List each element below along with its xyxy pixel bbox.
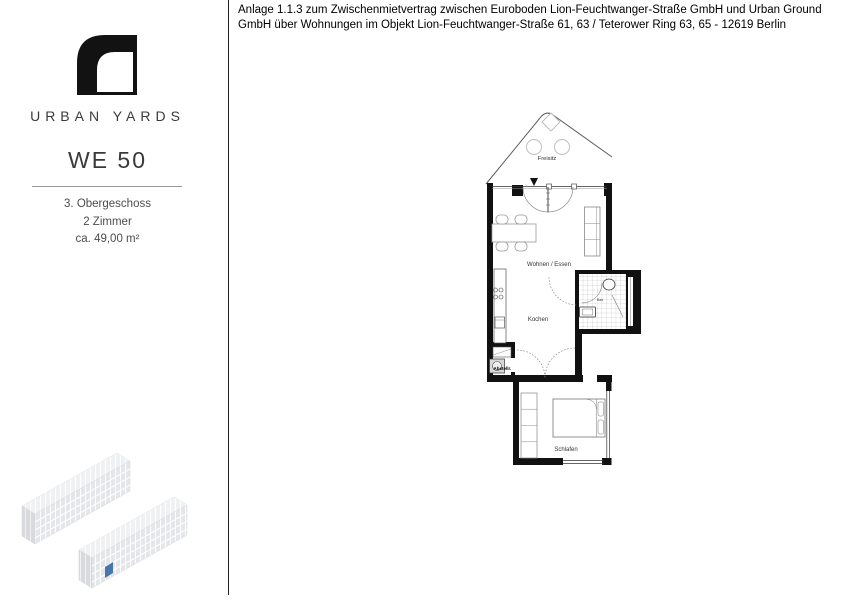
kitchen: Kochen — [494, 269, 549, 343]
urban-yards-logo-icon — [77, 35, 137, 95]
bathroom: Bad — [575, 270, 641, 334]
room-label-bad: Bad — [597, 298, 603, 302]
room-label-schlafen: Schlafen — [554, 447, 577, 453]
bedroom: Schlafen — [521, 391, 610, 464]
pillow — [598, 420, 604, 434]
terrace-chair — [555, 140, 570, 155]
wall-right-upper — [606, 183, 612, 273]
logo-svg — [77, 35, 137, 95]
room-label-freisitz: Freisitz — [538, 156, 557, 162]
toilet-icon — [580, 307, 596, 317]
entrance-arrow-icon — [530, 178, 538, 186]
terrace-chair — [527, 140, 542, 155]
storage-room: Abstellr. — [490, 347, 512, 373]
wall-bedroom-bottom-corner — [602, 458, 612, 465]
room-label-kochen: Kochen — [528, 317, 548, 323]
header-attachment-note: Anlage 1.1.3 zum Zwischenmietvertrag zwi… — [238, 3, 854, 33]
kitchen-sink-icon — [495, 317, 505, 328]
detail-floor: 3. Obergeschoss — [0, 196, 215, 214]
wall-bedroom-left — [513, 382, 519, 462]
room-label-abstellraum: Abstellr. — [494, 366, 512, 371]
site-plan — [10, 445, 210, 595]
logo-inner-shape — [97, 52, 133, 92]
wardrobe — [521, 393, 537, 458]
unit-details: 3. Obergeschoss 2 Zimmer ca. 49,00 m² — [0, 196, 215, 249]
detail-area: ca. 49,00 m² — [0, 231, 215, 249]
living-dining-room: Wohnen / Essen — [492, 207, 600, 268]
entrance — [523, 178, 573, 212]
wall-tick — [606, 382, 612, 391]
window-front-top — [492, 184, 607, 189]
sidebar-rule — [32, 186, 182, 187]
terrace-table — [542, 113, 560, 131]
bathroom-sink-icon — [603, 279, 615, 290]
terrace: Freisitz — [486, 113, 612, 184]
door-swing — [549, 277, 577, 305]
sidebar-divider — [228, 0, 229, 595]
room-label-wohnen-essen: Wohnen / Essen — [527, 262, 571, 268]
wall-left — [487, 183, 493, 382]
sofa — [585, 207, 601, 256]
pillow — [598, 402, 604, 416]
brand-name: URBAN YARDS — [0, 108, 215, 124]
dining-table — [492, 224, 536, 242]
wall-bedroom-bottom — [513, 458, 563, 465]
dining-chair — [515, 215, 527, 224]
unit-title: WE 50 — [0, 147, 215, 174]
wall-below-bath — [575, 334, 582, 382]
wall-bedroom-top-right — [597, 375, 612, 382]
detail-rooms: 2 Zimmer — [0, 214, 215, 232]
window-mullion — [547, 184, 552, 189]
wall-bedroom-top — [511, 375, 583, 382]
door-swing — [545, 348, 575, 378]
window-mullion — [572, 184, 577, 189]
door-swing — [517, 350, 545, 378]
floor-plan-svg: Freisitz — [455, 100, 665, 495]
page: { "header": { "attachment_note": "Anlage… — [0, 0, 856, 595]
kitchen-counter — [494, 269, 506, 343]
floor-plan: Freisitz — [455, 100, 665, 495]
sidebar: URBAN YARDS WE 50 3. Obergeschoss 2 Zimm… — [0, 0, 228, 595]
dining-chair — [496, 215, 508, 224]
hall-door-swings — [517, 277, 577, 378]
dining-chair — [515, 242, 527, 251]
dining-chair — [496, 242, 508, 251]
bed — [553, 399, 605, 437]
wall-storage-right-upper — [511, 342, 515, 358]
site-plan-svg — [10, 445, 210, 595]
